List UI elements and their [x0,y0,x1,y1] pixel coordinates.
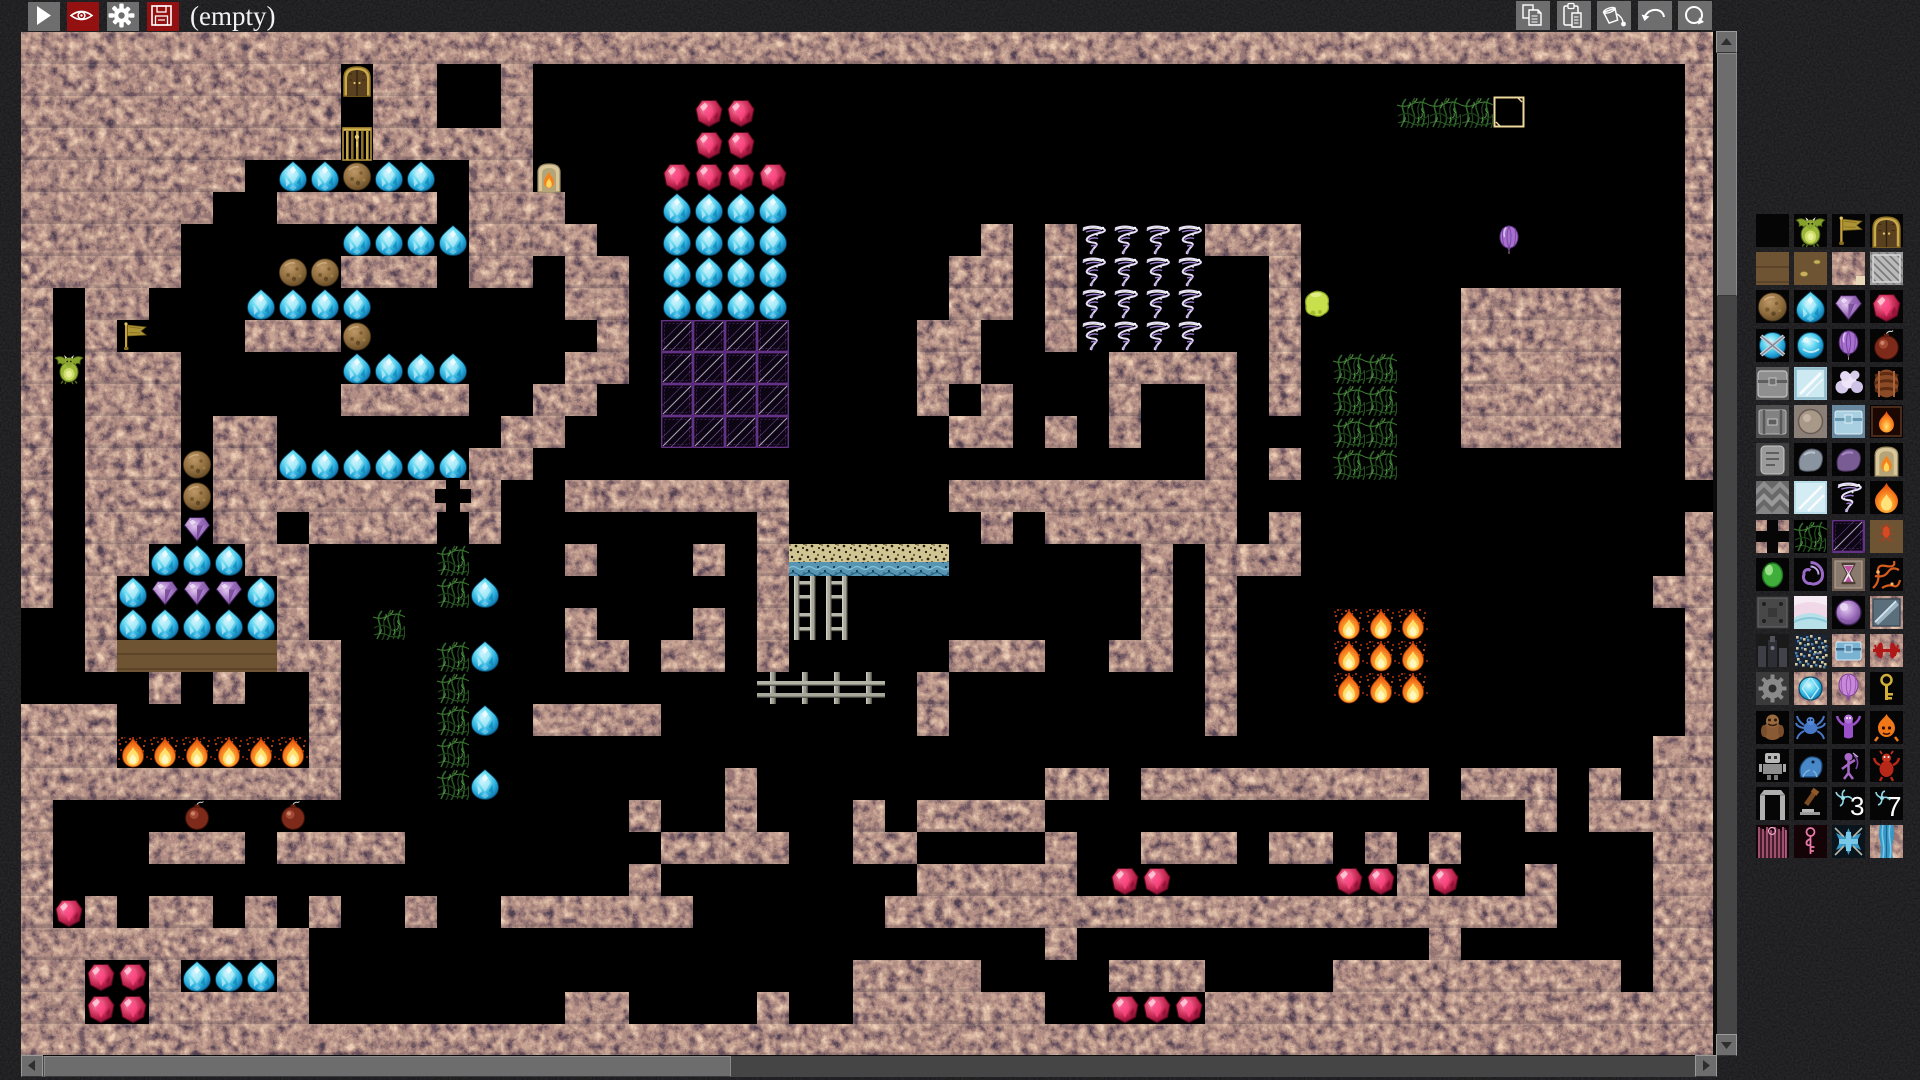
svg-text:3: 3 [1850,791,1864,821]
svg-text:7: 7 [1886,791,1902,822]
